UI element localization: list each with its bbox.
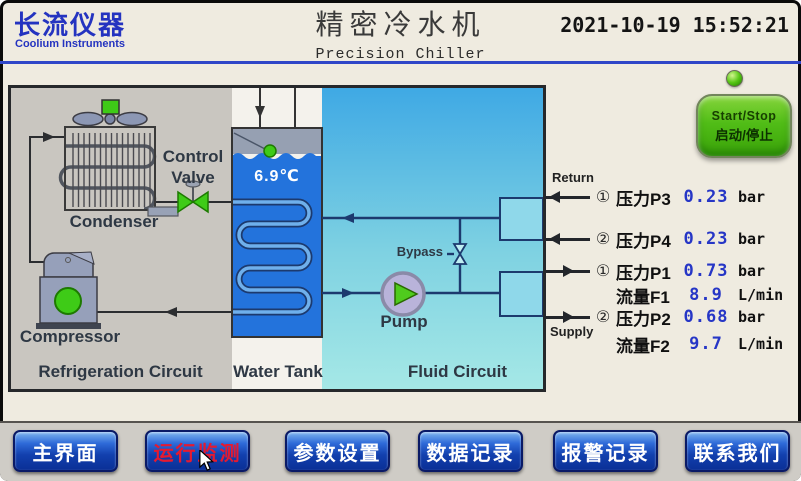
reading-unit: bar: [738, 188, 765, 206]
fan-motor-indicator: [102, 100, 119, 114]
circuit-index: ①: [590, 187, 616, 207]
level-sensor-indicator: [264, 145, 276, 157]
nav-button-alarm-log[interactable]: 报警记录: [553, 430, 658, 472]
reading-row-f2: 流量F2 9.7 L/min: [546, 332, 798, 356]
circuit-index: ①: [590, 261, 616, 281]
fluid-section-label: Fluid Circuit: [385, 362, 530, 382]
reading-value: 8.9: [680, 285, 732, 305]
compressor-run-indicator: [55, 288, 81, 314]
reading-row-p1: ① 压力P1 0.73 bar: [546, 259, 798, 283]
start-stop-label-en: Start/Stop: [712, 109, 777, 123]
return-label: Return: [552, 170, 594, 185]
compressor-icon: [36, 252, 101, 329]
nav-button-contact[interactable]: 联系我们: [685, 430, 790, 472]
circuit-index: ②: [590, 307, 616, 327]
start-stop-label-cn: 启动/停止: [715, 124, 773, 144]
page-title-cn: 精密冷水机: [315, 3, 485, 43]
page-title: 精密冷水机 Precision Chiller: [315, 3, 485, 63]
nav-button-main[interactable]: 主界面: [13, 430, 118, 472]
reading-label: 压力P4: [616, 227, 680, 252]
header-divider: [0, 61, 801, 64]
reading-label: 压力P3: [616, 185, 680, 210]
logo-cn: 长流仪器: [14, 5, 126, 42]
nav-button-data-log[interactable]: 数据记录: [418, 430, 523, 472]
reading-unit: bar: [738, 308, 765, 326]
condenser-label: Condenser: [52, 212, 176, 232]
reading-value: 0.68: [680, 307, 732, 327]
supply-line-1: [546, 270, 590, 273]
pump-label: Pump: [372, 312, 436, 332]
return-line-2: [546, 238, 590, 241]
reading-label: 压力P2: [616, 305, 680, 330]
bypass-label: Bypass: [393, 244, 443, 259]
reading-value: 0.23: [680, 229, 732, 249]
start-stop-button[interactable]: Start/Stop 启动/停止: [696, 94, 792, 158]
water-tank-section-label: Water Tank: [228, 362, 328, 382]
nav-button-parameters[interactable]: 参数设置: [285, 430, 390, 472]
reading-row-p3: ① 压力P3 0.23 bar: [546, 185, 798, 209]
supply-line-2: [546, 316, 590, 319]
reading-value: 0.73: [680, 261, 732, 281]
reading-unit: L/min: [738, 286, 783, 304]
reading-row-f1: 流量F1 8.9 L/min: [546, 283, 798, 307]
return-line-1: [546, 196, 590, 199]
compressor-label: Compressor: [12, 327, 128, 347]
tank-temperature-readout: 6.9℃: [244, 166, 310, 186]
bottom-navbar: 主界面 运行监测 参数设置 数据记录 报警记录 联系我们: [0, 421, 801, 481]
refrigeration-section-label: Refrigeration Circuit: [18, 362, 223, 382]
pump-icon: [382, 273, 424, 315]
logo-en: Coolium Instruments: [15, 38, 125, 50]
reading-unit: L/min: [738, 335, 783, 353]
control-valve-label: Control Valve: [152, 146, 234, 188]
datetime-display: 2021-10-19 15:52:21: [560, 13, 789, 37]
water-tank-icon: [232, 128, 322, 337]
reading-unit: bar: [738, 262, 765, 280]
reading-row-p4: ② 压力P4 0.23 bar: [546, 227, 798, 251]
mouse-cursor: [198, 450, 214, 472]
reading-value: 0.23: [680, 187, 732, 207]
supply-manifold: [500, 272, 543, 316]
reading-label: 流量F2: [616, 332, 680, 357]
reading-unit: bar: [738, 230, 765, 248]
circuit-index: ②: [590, 229, 616, 249]
reading-row-p2: ② 压力P2 0.68 bar: [546, 305, 798, 329]
return-manifold: [500, 198, 543, 240]
power-indicator-led: [726, 70, 743, 87]
reading-value: 9.7: [680, 334, 732, 354]
reading-label: 压力P1: [616, 259, 680, 284]
chiller-hmi-screen: 长流仪器 Coolium Instruments 精密冷水机 Precision…: [0, 0, 801, 481]
